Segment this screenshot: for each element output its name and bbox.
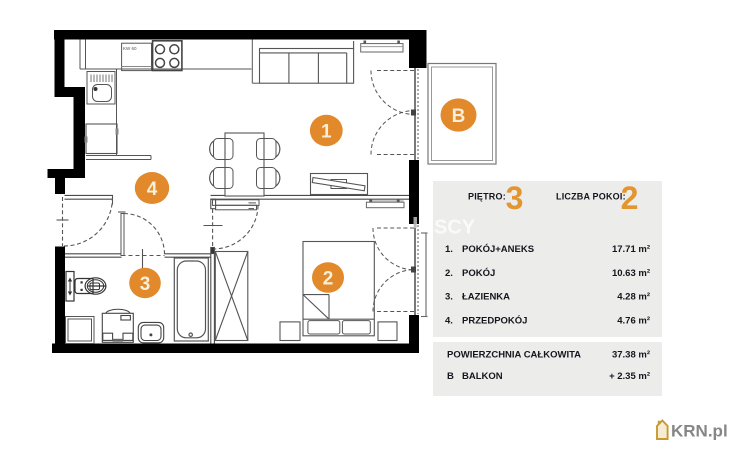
svg-text:2: 2 — [621, 180, 639, 216]
svg-text:3: 3 — [506, 180, 524, 216]
svg-text:1: 1 — [321, 122, 332, 143]
svg-text:4.76 m²: 4.76 m² — [617, 316, 650, 327]
svg-text:KRN.pl: KRN.pl — [671, 421, 728, 440]
svg-text:2.: 2. — [445, 268, 453, 279]
svg-text:10.63 m²: 10.63 m² — [612, 268, 650, 279]
svg-text:B: B — [452, 106, 466, 127]
svg-text:POWIERZCHNIA CAŁKOWITA: POWIERZCHNIA CAŁKOWITA — [447, 350, 581, 361]
svg-text:PIĘTRO:: PIĘTRO: — [468, 191, 506, 201]
svg-text:LICZBA POKOI:: LICZBA POKOI: — [556, 191, 626, 201]
svg-text:3.: 3. — [445, 292, 453, 303]
svg-text:37.38 m²: 37.38 m² — [612, 350, 650, 361]
svg-text:SCY: SCY — [434, 217, 476, 239]
svg-text:17.71 m²: 17.71 m² — [612, 244, 650, 255]
svg-text:3: 3 — [140, 274, 151, 295]
svg-text:ŁAZIENKA: ŁAZIENKA — [462, 292, 510, 303]
svg-text:POKÓJ: POKÓJ — [462, 267, 495, 279]
svg-text:4.28 m²: 4.28 m² — [617, 292, 650, 303]
svg-text:PRZEDPOKÓJ: PRZEDPOKÓJ — [462, 315, 527, 327]
svg-text:B: B — [447, 371, 454, 382]
svg-text:KW 60: KW 60 — [123, 46, 137, 51]
svg-text:BALKON: BALKON — [462, 371, 503, 382]
svg-text:1.: 1. — [445, 244, 453, 255]
svg-text:+ 2.35 m²: + 2.35 m² — [609, 371, 650, 382]
svg-text:4: 4 — [147, 179, 158, 200]
svg-text:4.: 4. — [445, 316, 453, 327]
svg-text:2: 2 — [323, 269, 334, 290]
svg-text:POKÓJ+ANEKS: POKÓJ+ANEKS — [462, 243, 534, 255]
